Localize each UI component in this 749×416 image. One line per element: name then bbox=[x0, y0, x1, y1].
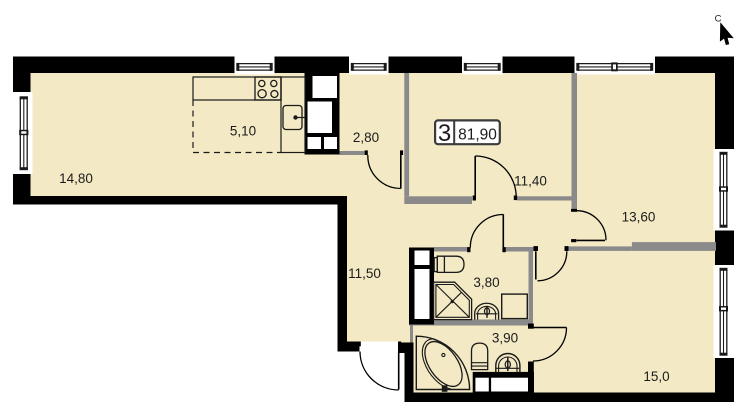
svg-text:5,10: 5,10 bbox=[230, 124, 256, 139]
svg-text:3,80: 3,80 bbox=[473, 275, 499, 290]
svg-text:14,80: 14,80 bbox=[59, 171, 93, 186]
svg-text:2,80: 2,80 bbox=[353, 130, 379, 145]
svg-text:11,40: 11,40 bbox=[514, 174, 547, 189]
svg-text:11,50: 11,50 bbox=[348, 266, 381, 281]
svg-text:15,0: 15,0 bbox=[643, 369, 669, 384]
svg-text:3: 3 bbox=[438, 120, 451, 147]
svg-text:13,60: 13,60 bbox=[622, 210, 656, 225]
svg-text:3,90: 3,90 bbox=[492, 331, 518, 346]
svg-text:81,90: 81,90 bbox=[458, 127, 497, 144]
